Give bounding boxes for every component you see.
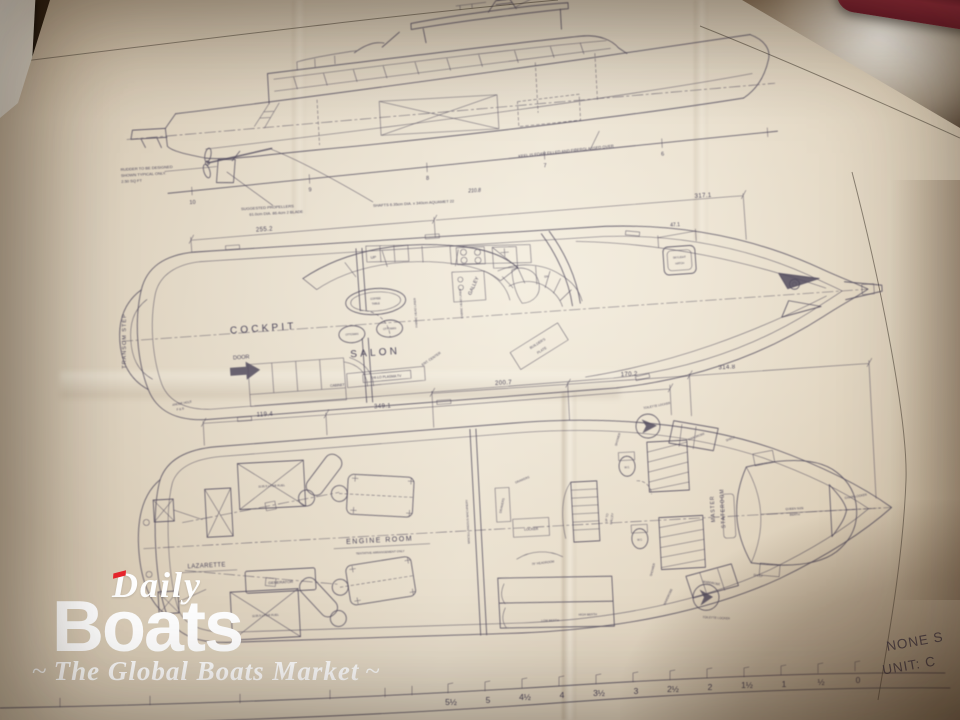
keel-note: KEEL IS FOAM FILLED AND FIBERGLASSED OVE…: [518, 143, 614, 158]
tv-label: HI-LO PLASMA TV: [372, 374, 402, 380]
dim-engine-room: 349.1: [374, 403, 392, 410]
skylight-label: SKYLIGHT: [673, 255, 686, 260]
toilette-locker-label: TOILETTE LOCKER: [643, 401, 672, 410]
low-berth-label: LOW BERTH: [541, 618, 559, 622]
svg-text:4½: 4½: [519, 692, 531, 702]
wardrobe-label: WARDROBE: [687, 432, 705, 442]
engine-room-label: ENGINE ROOM: [346, 536, 413, 547]
svg-text:5½: 5½: [445, 697, 457, 707]
svg-text:4: 4: [560, 690, 565, 700]
station-number: 6: [661, 152, 664, 158]
coffee-table-label2: TABLE: [372, 301, 381, 306]
engine-port: [330, 473, 414, 517]
galley-label: GALLEY: [467, 275, 481, 296]
dimension-salon: 317.1: [694, 193, 712, 200]
drawers-label: DRAWERS: [498, 498, 505, 514]
tagline-text: The Global Boats Market: [54, 656, 360, 686]
dim-lazarette: 119.4: [256, 412, 273, 419]
machinery-note: MISCELLANEOUS MACHINERY: [465, 499, 471, 543]
flourish-right-icon: ~: [359, 656, 387, 686]
ottoman-label: OTTOMAN: [383, 326, 396, 331]
ent-center-label: ENT. CENTER: [421, 351, 442, 367]
flourish-left-icon: ~: [26, 656, 54, 686]
door-label: DOOR: [233, 354, 250, 361]
chain-locker-label: CHAIN LOCKER: [844, 492, 868, 500]
coffee-table-label: COFFEE: [370, 296, 381, 301]
cockpit-label: COCKPIT: [230, 321, 297, 337]
watermark-tagline: ~The Global Boats Market~: [26, 656, 387, 687]
head-liner-note: FABRIC HEAD LINER: [412, 297, 418, 328]
headroom-note: 76" HEADROOM: [531, 559, 555, 566]
corner-shadow: [620, 500, 960, 720]
svg-text:5: 5: [486, 695, 491, 705]
dim-master: 314.8: [718, 364, 736, 371]
dim-cabins: 200.7: [495, 380, 513, 387]
salon-label: SALON: [350, 346, 401, 360]
svg-text:3½: 3½: [593, 688, 605, 698]
up-to-galley-label: UP TO GALLEY: [604, 512, 615, 525]
generator-label: GENERATOR: [268, 579, 293, 585]
station-number: 10: [189, 200, 195, 206]
engine-starboard: [329, 556, 416, 608]
fuel-tank-label: 1135.5 LITER FUEL: [258, 483, 285, 488]
high-berth-label: HIGH BERTH: [579, 612, 598, 616]
propeller-note: SUGGESTED PROPELLERS 61.0cm DIA. 86.4cm …: [241, 203, 304, 217]
dimension-hatch: 47.1: [670, 222, 680, 229]
tentative-note: TENTATIVE ARRANGEMENT ONLY: [356, 549, 405, 556]
station-number: 7: [543, 163, 546, 169]
dim-heads: 170.2: [621, 372, 639, 379]
station-number: 8: [426, 176, 429, 182]
svg-text:SHOWN TYPICAL ONLY.: SHOWN TYPICAL ONLY.: [121, 170, 166, 178]
builders-plate: BUILDER'S PLATE: [510, 323, 568, 370]
up-label: UP: [370, 254, 376, 259]
svg-text:2.50 SQ FT: 2.50 SQ FT: [121, 178, 142, 184]
waterline-dimension: 210.8: [467, 188, 481, 195]
rudder-note: RUDDER TO BE DESIGNED SHOWN TYPICAL ONLY…: [120, 164, 173, 184]
head-liner-note: FABRIC HEAD LINER: [458, 288, 464, 319]
ottoman-label: OTTOMAN: [345, 332, 358, 337]
shower-label: SHOWER: [614, 432, 622, 447]
fuel-tank-label: 1135.5 LITER FUEL: [252, 613, 279, 618]
station-number: 9: [308, 187, 311, 193]
dimension-cockpit: 255.2: [256, 226, 274, 233]
shaft-note: SHAFTS 6.35cm DIA. x 340cm AQUAMET 22: [373, 198, 455, 208]
photo-of-boat-blueprint: 10 9 8 7 6 RUDDER TO BE DESIGNED SHOWN T…: [0, 0, 960, 720]
skylight-label2: HATCH: [675, 261, 684, 266]
drawers-label: DRAWERS: [514, 475, 530, 485]
wc-label: W.C.: [624, 465, 630, 469]
locker-label: LOCKER: [524, 527, 539, 532]
transom-step-label: TRANSOM STEP: [122, 313, 128, 368]
dn-label: DN: [544, 274, 549, 278]
shelf-label: SHELF: [725, 435, 736, 442]
